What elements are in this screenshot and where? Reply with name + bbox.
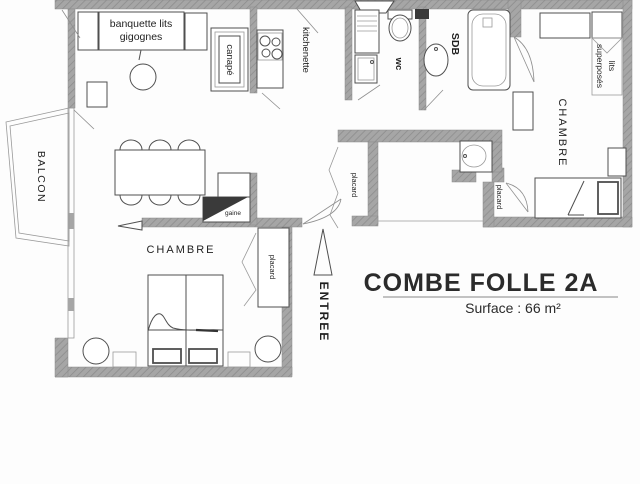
placard-right-label: placard [495, 185, 504, 210]
wall-kitchen-west [250, 7, 257, 93]
placard-hall-label: placard [350, 173, 359, 198]
wc-door-leaf [358, 85, 380, 100]
wall-gaine-east [250, 173, 257, 225]
window-tick-2 [68, 298, 74, 311]
bathroom: SDB [424, 10, 510, 90]
banquette-label-line1: banquette lits [110, 18, 172, 30]
wall-hall-placard-east [368, 142, 378, 224]
sdb-label: SDB [449, 33, 461, 56]
gaine-label: gaine [225, 210, 241, 217]
dining-chair-6 [178, 195, 200, 205]
dining-chair-2 [149, 140, 171, 150]
entry-door-leaf [303, 199, 341, 224]
banquette-seat-left [78, 12, 98, 50]
bed-left-pillow-2 [189, 349, 217, 363]
bench-left [113, 352, 136, 367]
bunkbed-label-line2: superposés [595, 44, 605, 88]
hall: placard ENTREE [314, 147, 359, 342]
wall-left-top [68, 9, 75, 108]
bathtub-outer [468, 10, 510, 90]
bench-right [228, 352, 250, 367]
banquette-seat-right [185, 13, 207, 50]
dining-chair-4 [120, 195, 142, 205]
water-heater [355, 10, 379, 53]
wall-hall-placard-south [352, 216, 378, 226]
duct-black-square [415, 9, 429, 19]
desk [540, 13, 590, 38]
cabinet-west [513, 92, 533, 130]
floorplan-page: BALCON banquette lits gigognes canapé ga… [0, 0, 640, 484]
nightstand [608, 148, 626, 176]
wall-bedroom-west [55, 338, 68, 377]
wc-label: wc [393, 57, 404, 71]
chamber-left: CHAMBRE placard [83, 228, 289, 367]
sdb-washbasin [424, 44, 448, 76]
wall-wc-west [345, 7, 352, 100]
entree-label: ENTREE [317, 282, 331, 343]
chamber-right-label: CHAMBRE [556, 98, 568, 167]
sdb-door-leaf [424, 90, 443, 110]
wall-sink-east [492, 142, 502, 172]
sink-alcove-counter [460, 141, 492, 172]
wall-top [55, 0, 632, 9]
entree-arrow [314, 229, 332, 275]
stool-right [255, 336, 281, 362]
dining-table [115, 150, 205, 195]
placard-bedroom-label: placard [268, 255, 277, 280]
dining-chair-5 [149, 195, 171, 205]
balcony: BALCON [6, 108, 69, 246]
bunkbed-label-line1: lits [607, 61, 617, 71]
balcony-door-leaf [74, 110, 94, 129]
wall-right [623, 0, 632, 227]
wall-placard-right-west [483, 182, 494, 227]
bed-left-pillow-1 [153, 349, 181, 363]
plan-surface: Surface : 66 m² [465, 300, 561, 316]
balcony-label: BALCON [35, 151, 47, 203]
stool-left [83, 338, 109, 364]
plan-title: COMBE FOLLE 2A [364, 269, 599, 297]
bunkbed-top [592, 12, 622, 38]
bedroom-door-leaf [118, 221, 142, 230]
kitchenette: kitchenette [257, 27, 311, 88]
banquette-label-line2: gigognes [120, 31, 163, 43]
floorplan-drawing: BALCON banquette lits gigognes canapé ga… [0, 0, 640, 484]
wall-hall-north [338, 130, 502, 142]
wc-room: wc [355, 10, 412, 83]
kitchenette-label: kitchenette [300, 27, 311, 73]
living-room: banquette lits gigognes canapé gaine [78, 12, 250, 222]
chamber-left-label: CHAMBRE [146, 244, 215, 256]
side-table [87, 82, 107, 107]
banquette-leader-line [139, 50, 141, 60]
dining-chair-1 [120, 140, 142, 150]
placard-bedroom-doors [242, 233, 256, 306]
placard-hall-doors [329, 147, 338, 228]
sofa-label: canapé [224, 44, 235, 75]
kitchen-pass-leaf [262, 93, 280, 109]
wall-bedroom-south [55, 367, 292, 377]
bed-left-duvet-dark [196, 330, 218, 331]
bed-right-pillow [598, 182, 618, 214]
gaine-cabinet [218, 173, 250, 197]
dining-chair-3 [178, 140, 200, 150]
round-table [130, 64, 156, 90]
title-block: COMBE FOLLE 2A Surface : 66 m² [364, 269, 618, 316]
